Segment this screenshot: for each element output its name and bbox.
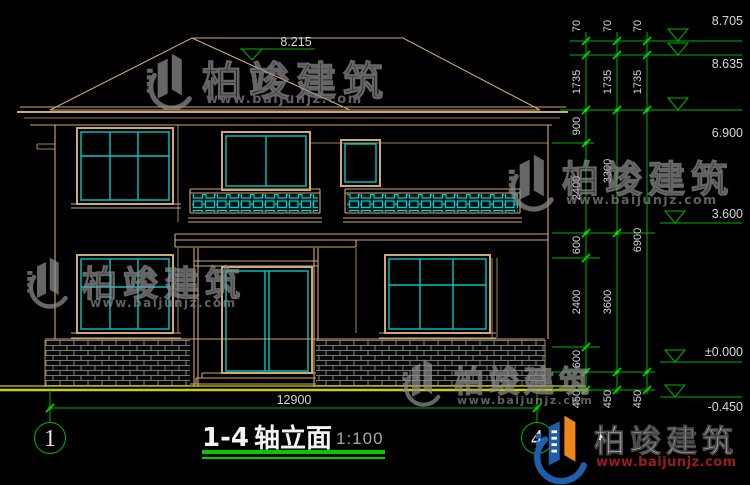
window-upper-left bbox=[71, 128, 181, 208]
svg-text:70: 70 bbox=[602, 20, 614, 32]
watermark-logo-icon bbox=[27, 258, 65, 307]
watermark-logo-icon bbox=[509, 155, 551, 209]
title-name: 轴立面 bbox=[254, 423, 332, 454]
svg-text:1: 1 bbox=[44, 426, 56, 452]
svg-text:1735: 1735 bbox=[571, 70, 583, 94]
svg-text:3600: 3600 bbox=[602, 290, 614, 314]
svg-text:www.baijunjz.com: www.baijunjz.com bbox=[206, 92, 363, 107]
svg-text:2400: 2400 bbox=[571, 290, 583, 314]
balcony-center bbox=[188, 189, 322, 222]
watermark-right: 柏竣建筑 www.baijunjz.com bbox=[509, 155, 734, 209]
balcony-right bbox=[343, 189, 522, 222]
dim-chain-middle: 70 1735 3300 3600 450 bbox=[602, 20, 614, 408]
level-8705: 8.705 bbox=[712, 14, 743, 28]
dim-chain-inner: 70 1735 900 2400 600 2400 600 450 bbox=[571, 20, 583, 408]
title-underline-thin bbox=[202, 457, 385, 459]
svg-text:1735: 1735 bbox=[632, 70, 644, 94]
level-8635: 8.635 bbox=[712, 57, 743, 71]
watermark-top: 柏竣建筑 www.baijunjz.com bbox=[147, 54, 390, 108]
ridge-level-value: 8.215 bbox=[280, 35, 311, 49]
svg-text:www.baijunjz.com: www.baijunjz.com bbox=[566, 192, 718, 207]
watermark-left: 柏竣建筑 www.baijunjz.com bbox=[27, 258, 246, 311]
level-markers bbox=[665, 29, 688, 397]
svg-text:www.baijunjz.com: www.baijunjz.com bbox=[90, 296, 237, 310]
watermark-bottom: 柏竣建筑 www.baijunjz.com bbox=[403, 359, 594, 407]
title-underline-thick bbox=[202, 450, 385, 454]
svg-text:70: 70 bbox=[571, 20, 583, 32]
watermark-logo-icon bbox=[147, 54, 190, 108]
floor-band-canopy bbox=[175, 234, 548, 247]
balcony-railing bbox=[192, 194, 318, 212]
level-n0450: -0.450 bbox=[708, 400, 743, 414]
title-axis-range: 1-4 bbox=[202, 423, 249, 453]
ac-ledge bbox=[37, 144, 55, 149]
level-0000: ±0.000 bbox=[705, 345, 743, 359]
title-scale: 1:100 bbox=[336, 429, 384, 448]
level-6900: 6.900 bbox=[712, 126, 743, 140]
level-3600: 3.600 bbox=[712, 207, 743, 221]
wall-pier bbox=[492, 258, 497, 338]
svg-text:6900: 6900 bbox=[632, 228, 644, 252]
drawing-title: 1-4 轴立面 1:100 bbox=[202, 423, 385, 459]
window-lower-right bbox=[379, 255, 496, 338]
overall-width-value: 12900 bbox=[277, 393, 312, 407]
window-upper-center bbox=[222, 132, 310, 190]
ridge-level-marker: 8.215 bbox=[240, 35, 315, 60]
svg-text:600: 600 bbox=[571, 236, 583, 254]
brand-logo-url: www.baijunjz.com bbox=[596, 455, 737, 470]
svg-text:450: 450 bbox=[602, 390, 614, 408]
svg-text:450: 450 bbox=[632, 390, 644, 408]
brand-logo-icon bbox=[536, 416, 584, 482]
svg-text:70: 70 bbox=[632, 20, 644, 32]
svg-text:www.baijunjz.com: www.baijunjz.com bbox=[457, 394, 593, 407]
svg-text:900: 900 bbox=[571, 117, 583, 135]
brand-logo: 柏竣建筑 www.baijunjz.com bbox=[536, 416, 738, 482]
dim-chain-outer: 70 1735 6900 450 bbox=[632, 20, 644, 408]
window-upper-small bbox=[341, 140, 380, 186]
cad-elevation-drawing: 8.215 8.705 8.635 6.900 3.600 ±0.00 bbox=[0, 0, 750, 485]
balcony-railing bbox=[347, 194, 518, 212]
axis-bubble-1: 1 bbox=[35, 423, 66, 454]
svg-text:1735: 1735 bbox=[602, 70, 614, 94]
